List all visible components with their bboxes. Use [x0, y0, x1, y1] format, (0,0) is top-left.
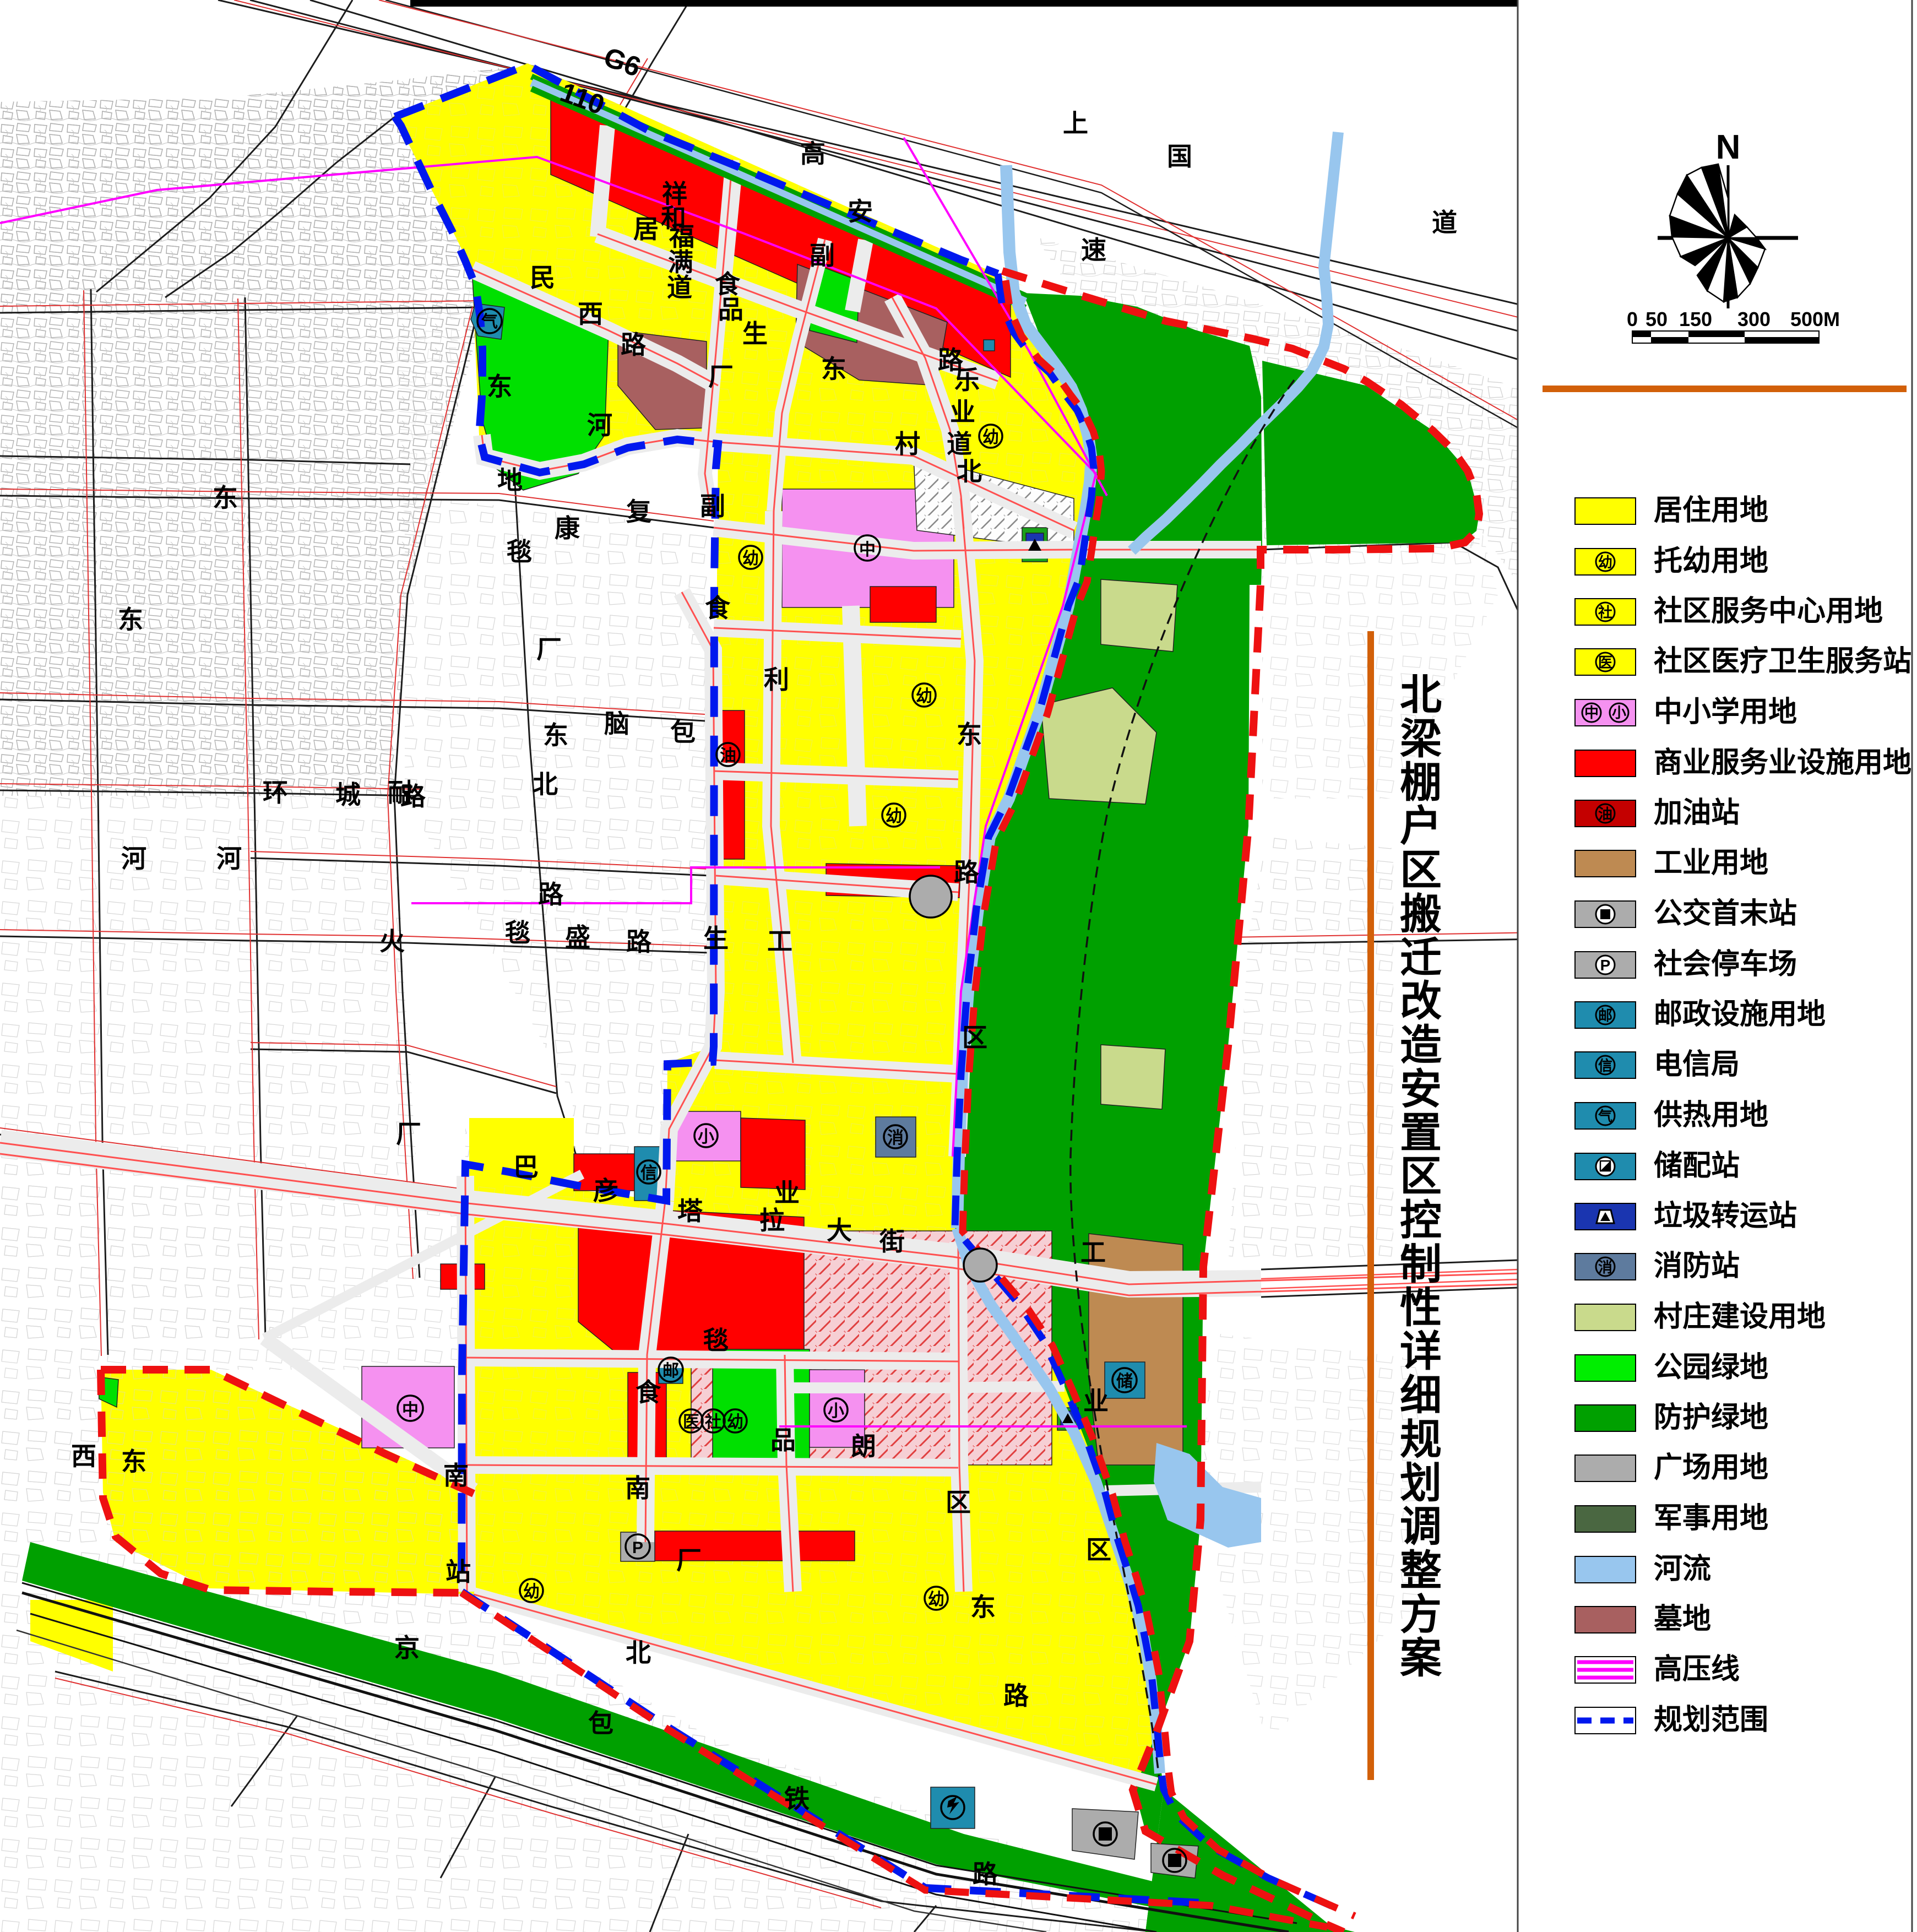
svg-text:福: 福: [669, 222, 694, 251]
svg-text:幼: 幼: [916, 687, 932, 705]
svg-text:盛: 盛: [565, 923, 590, 952]
svg-text:整: 整: [1400, 1548, 1442, 1594]
svg-text:东: 东: [121, 1447, 146, 1476]
svg-text:彦: 彦: [593, 1176, 618, 1205]
svg-text:厂: 厂: [536, 635, 562, 664]
svg-text:托幼用地: 托幼用地: [1654, 545, 1768, 577]
svg-text:详: 详: [1400, 1328, 1442, 1375]
svg-text:村庄建设用地: 村庄建设用地: [1654, 1301, 1826, 1333]
svg-text:搬: 搬: [1400, 891, 1442, 938]
svg-text:路: 路: [538, 880, 564, 909]
svg-text:邮政设施用地: 邮政设施用地: [1654, 998, 1826, 1030]
svg-text:康: 康: [555, 514, 580, 542]
svg-text:社: 社: [1598, 604, 1612, 621]
svg-text:消: 消: [1598, 1259, 1612, 1276]
svg-text:满: 满: [668, 248, 693, 276]
svg-text:0: 0: [1627, 308, 1638, 330]
svg-text:社区医疗卫生服务站: 社区医疗卫生服务站: [1654, 645, 1911, 677]
svg-text:生: 生: [703, 924, 729, 953]
svg-text:工: 工: [767, 927, 792, 956]
svg-text:N: N: [1716, 128, 1741, 166]
svg-text:置: 置: [1400, 1110, 1442, 1157]
svg-text:防护绿地: 防护绿地: [1654, 1402, 1768, 1434]
svg-text:包: 包: [670, 718, 696, 746]
svg-text:毯: 毯: [507, 538, 532, 566]
svg-text:棚: 棚: [1400, 759, 1442, 806]
svg-text:工业用地: 工业用地: [1654, 847, 1768, 879]
svg-text:消: 消: [887, 1129, 904, 1147]
svg-text:幼: 幼: [982, 428, 999, 447]
svg-text:品: 品: [718, 295, 743, 324]
svg-text:东: 东: [118, 605, 143, 634]
svg-text:控: 控: [1400, 1197, 1442, 1244]
svg-text:高压线: 高压线: [1654, 1653, 1740, 1685]
svg-text:北: 北: [957, 457, 982, 486]
svg-text:P: P: [1600, 957, 1611, 974]
svg-text:梁: 梁: [1400, 716, 1442, 763]
svg-text:中: 中: [859, 541, 876, 559]
svg-text:50: 50: [1646, 308, 1668, 330]
svg-text:西: 西: [578, 300, 603, 328]
svg-text:南: 南: [625, 1474, 650, 1502]
svg-text:业: 业: [774, 1179, 800, 1207]
svg-text:工: 工: [1080, 1238, 1106, 1267]
svg-text:北: 北: [626, 1638, 651, 1667]
svg-text:300: 300: [1737, 308, 1771, 330]
svg-text:供热用地: 供热用地: [1654, 1099, 1768, 1131]
svg-text:河: 河: [216, 844, 242, 873]
svg-text:路: 路: [973, 1860, 998, 1888]
svg-text:北: 北: [1400, 672, 1442, 719]
svg-text:塔: 塔: [677, 1197, 703, 1225]
svg-text:副: 副: [810, 241, 835, 270]
svg-text:品: 品: [770, 1426, 796, 1455]
svg-text:区: 区: [962, 1023, 987, 1052]
svg-text:信: 信: [640, 1164, 657, 1182]
svg-text:路: 路: [1003, 1681, 1029, 1710]
svg-text:中: 中: [1584, 704, 1599, 721]
svg-text:北: 北: [533, 770, 558, 799]
svg-text:速: 速: [1081, 236, 1106, 264]
svg-text:毯: 毯: [703, 1326, 729, 1355]
svg-text:社: 社: [705, 1413, 721, 1431]
svg-text:铁: 铁: [784, 1784, 810, 1813]
svg-text:区: 区: [1400, 1153, 1442, 1200]
svg-text:500M: 500M: [1790, 308, 1840, 330]
svg-text:储: 储: [1116, 1372, 1133, 1391]
svg-text:东: 东: [213, 484, 238, 512]
svg-text:医: 医: [683, 1413, 699, 1431]
svg-text:消防站: 消防站: [1654, 1250, 1740, 1282]
svg-text:中: 中: [402, 1401, 419, 1419]
svg-text:区: 区: [1400, 847, 1442, 894]
svg-text:安: 安: [1400, 1066, 1442, 1113]
svg-text:河: 河: [587, 411, 612, 439]
svg-text:商业服务业设施用地: 商业服务业设施用地: [1654, 747, 1911, 779]
svg-text:站: 站: [446, 1557, 471, 1586]
svg-text:居: 居: [633, 215, 659, 243]
svg-text:迁: 迁: [1400, 935, 1442, 981]
svg-text:巴: 巴: [513, 1153, 539, 1181]
svg-text:电信局: 电信局: [1654, 1049, 1740, 1081]
svg-text:东: 东: [821, 355, 846, 383]
svg-text:京: 京: [394, 1633, 420, 1662]
svg-text:邮: 邮: [1598, 1007, 1612, 1024]
svg-text:道: 道: [947, 430, 972, 458]
svg-text:火: 火: [379, 927, 405, 956]
svg-text:路: 路: [621, 330, 647, 359]
svg-text:幼: 幼: [1598, 554, 1612, 571]
svg-text:副: 副: [700, 492, 725, 520]
svg-text:地: 地: [497, 466, 523, 495]
svg-text:村: 村: [895, 430, 920, 458]
svg-text:小: 小: [1612, 704, 1626, 721]
svg-text:安: 安: [848, 197, 873, 226]
svg-text:案: 案: [1400, 1635, 1442, 1682]
svg-text:区: 区: [1086, 1535, 1111, 1564]
svg-text:城: 城: [335, 780, 361, 809]
svg-text:东: 东: [543, 721, 568, 750]
svg-text:公交首末站: 公交首末站: [1654, 898, 1797, 930]
svg-text:方: 方: [1400, 1592, 1442, 1638]
svg-text:食: 食: [705, 594, 731, 622]
svg-text:利: 利: [764, 665, 789, 694]
svg-text:社会停车场: 社会停车场: [1654, 948, 1797, 980]
svg-text:复: 复: [626, 497, 651, 526]
svg-text:社区服务中心用地: 社区服务中心用地: [1654, 595, 1883, 627]
svg-text:东: 东: [957, 720, 982, 749]
svg-text:业: 业: [950, 398, 975, 426]
svg-text:小: 小: [828, 1402, 844, 1420]
svg-text:毯: 毯: [505, 919, 530, 947]
svg-text:厂: 厂: [708, 362, 734, 391]
svg-text:油: 油: [1598, 806, 1612, 822]
svg-text:性: 性: [1400, 1285, 1442, 1332]
svg-text:医: 医: [1598, 654, 1612, 671]
svg-text:规划范围: 规划范围: [1654, 1704, 1768, 1736]
svg-text:生: 生: [742, 319, 768, 348]
svg-text:河: 河: [121, 844, 146, 873]
svg-text:国: 国: [1167, 142, 1192, 171]
svg-text:制: 制: [1400, 1241, 1442, 1288]
svg-text:垃圾转运站: 垃圾转运站: [1654, 1200, 1797, 1232]
svg-text:南: 南: [443, 1461, 469, 1490]
svg-text:道: 道: [667, 273, 692, 302]
svg-text:划: 划: [1400, 1460, 1442, 1507]
svg-text:河流: 河流: [1654, 1553, 1711, 1585]
svg-text:朗: 朗: [851, 1432, 876, 1461]
svg-text:拉: 拉: [759, 1206, 785, 1235]
svg-text:厂: 厂: [676, 1546, 702, 1575]
svg-text:规: 规: [1400, 1417, 1442, 1463]
svg-text:东: 东: [970, 1593, 996, 1621]
svg-text:道: 道: [1432, 208, 1457, 237]
svg-text:军事用地: 军事用地: [1654, 1502, 1768, 1534]
svg-text:细: 细: [1400, 1372, 1442, 1419]
svg-text:乐: 乐: [954, 366, 980, 394]
svg-text:150: 150: [1679, 308, 1712, 330]
svg-text:墓地: 墓地: [1654, 1603, 1711, 1635]
svg-text:信: 信: [1598, 1057, 1612, 1074]
svg-text:东: 东: [487, 372, 512, 401]
svg-text:路: 路: [400, 782, 426, 811]
svg-text:中小学用地: 中小学用地: [1654, 696, 1797, 728]
svg-text:气: 气: [481, 313, 498, 331]
svg-text:储配站: 储配站: [1654, 1150, 1740, 1182]
svg-text:街: 街: [879, 1227, 905, 1256]
svg-text:大: 大: [827, 1216, 852, 1245]
svg-text:民: 民: [530, 263, 555, 292]
svg-text:幼: 幼: [928, 1591, 944, 1609]
svg-text:包: 包: [588, 1709, 613, 1738]
svg-text:脑: 脑: [604, 709, 629, 738]
svg-text:P: P: [632, 1539, 643, 1557]
svg-text:路: 路: [954, 858, 980, 887]
svg-text:造: 造: [1400, 1022, 1442, 1069]
svg-text:食: 食: [715, 270, 741, 299]
svg-text:调: 调: [1400, 1504, 1442, 1550]
svg-text:西: 西: [71, 1442, 96, 1470]
svg-text:邮: 邮: [662, 1362, 679, 1380]
svg-text:居住用地: 居住用地: [1654, 495, 1768, 527]
svg-text:公园绿地: 公园绿地: [1654, 1352, 1768, 1383]
svg-text:加油站: 加油站: [1654, 797, 1740, 829]
svg-text:上: 上: [1063, 109, 1088, 138]
svg-text:幼: 幼: [742, 550, 759, 568]
svg-text:气: 气: [1598, 1108, 1612, 1125]
svg-text:户: 户: [1400, 803, 1442, 850]
svg-text:高: 高: [800, 139, 826, 168]
svg-text:环: 环: [263, 778, 288, 807]
svg-text:幼: 幼: [727, 1413, 743, 1431]
svg-text:厂: 厂: [396, 1120, 421, 1148]
svg-text:小: 小: [698, 1128, 714, 1146]
svg-text:幼: 幼: [523, 1583, 540, 1601]
svg-text:广场用地: 广场用地: [1654, 1452, 1768, 1484]
svg-text:油: 油: [720, 747, 736, 765]
svg-text:幼: 幼: [886, 807, 902, 826]
svg-text:食: 食: [636, 1378, 661, 1407]
svg-text:路: 路: [626, 927, 652, 956]
svg-text:业: 业: [1083, 1387, 1109, 1415]
svg-text:区: 区: [946, 1488, 971, 1517]
svg-text:改: 改: [1400, 978, 1442, 1025]
